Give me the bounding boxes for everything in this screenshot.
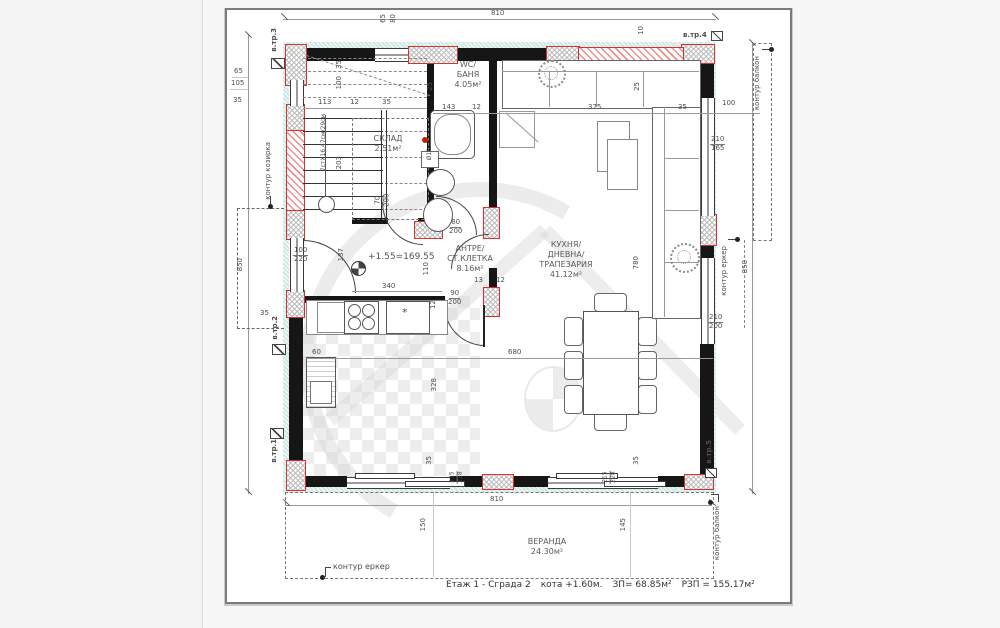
dim-label: 228	[457, 471, 464, 482]
valve-marker	[422, 137, 428, 143]
dim-line-340	[352, 291, 442, 292]
sofa-back-line	[664, 107, 665, 317]
dim-label: 25	[427, 82, 434, 91]
title-block: Етаж 1 - Сграда 2 кота +1.60м. ЗП= 68.85…	[446, 580, 755, 590]
dim-label: 113	[318, 99, 331, 106]
dim-label: 200	[449, 228, 462, 236]
burner	[362, 304, 375, 317]
marker-vtr5: в.тр.5	[706, 440, 713, 464]
column-bottom-mid	[482, 474, 514, 490]
sofa-top	[502, 60, 701, 109]
dim-label: 25	[634, 82, 641, 91]
dim-label: 200	[709, 323, 722, 331]
chair	[564, 351, 583, 380]
stair-tread	[303, 84, 427, 86]
dim-label: 165	[711, 145, 724, 153]
leader-line	[718, 494, 719, 502]
wall-right-b	[700, 244, 714, 258]
bathtub-basin	[434, 114, 471, 155]
dim-label: 228	[610, 471, 617, 482]
dim-fraction: 210 165	[710, 136, 725, 152]
leader-dot	[708, 500, 713, 505]
dim-fraction: 70 200	[375, 194, 391, 207]
room-name: КУХНЯ/	[520, 240, 612, 250]
sofa-right	[652, 107, 701, 319]
chair	[638, 317, 657, 346]
sofa-divider	[665, 210, 699, 211]
contour-balkon-bottom-label: контур балкон	[714, 506, 721, 560]
dim-label: 35	[426, 456, 433, 465]
dim-label: 680	[508, 349, 521, 356]
marker-vtr5-icon	[705, 468, 717, 478]
room-label-sklad: СКЛАД 2.51м²	[360, 134, 416, 154]
marker-vtr1: в.тр.1	[271, 439, 278, 463]
dim-label: 105	[231, 80, 244, 87]
window-left-a	[290, 80, 304, 106]
room-name: ТРАПЕЗАРИЯ	[520, 260, 612, 270]
corner-cabinet	[499, 111, 535, 148]
pipe-label: Ø18	[427, 148, 433, 160]
floorplan-viewport: * +1.55=169.55	[0, 0, 1000, 628]
slider-leaf	[355, 473, 415, 479]
wall-right-a	[700, 62, 714, 98]
dim-label: 200	[448, 299, 461, 307]
chair	[564, 385, 583, 414]
contour-erker-bottom-label: контур еркер	[333, 563, 390, 571]
room-name: АНТРЕ/	[436, 244, 504, 254]
marker-vtr4-icon	[711, 31, 723, 41]
leader-dot	[735, 237, 740, 242]
dim-label: 80	[390, 14, 397, 23]
room-area: 8.16м²	[436, 264, 504, 274]
dim-label: 100	[336, 76, 343, 89]
room-area: 24.30м²	[505, 547, 589, 557]
dining-table	[583, 311, 639, 415]
dim-label: 65	[234, 68, 243, 75]
room-label-kitchen: КУХНЯ/ ДНЕВНА/ ТРАПЕЗАРИЯ 41.12м²	[520, 240, 612, 280]
dim-label: 150	[420, 518, 427, 531]
dim-line-680	[306, 358, 713, 359]
level-mark: +1.55=169.55	[368, 252, 435, 262]
stair-walkline-start	[318, 196, 335, 213]
room-label-wc: WC/ БАНЯ 4.05м²	[436, 60, 500, 90]
dim-label: 35	[233, 97, 242, 104]
dim-fraction: 80 200	[449, 219, 462, 235]
dim-label: 203	[336, 156, 343, 169]
room-area: 4.05м²	[436, 80, 500, 90]
room-name: ДНЕВНА/	[520, 250, 612, 260]
washbasin	[426, 169, 455, 196]
marker-vtr2: в.тр.2	[272, 316, 279, 340]
leader-dot	[268, 204, 273, 209]
kitchen-unit-star	[386, 301, 430, 334]
dim-label: 12	[496, 277, 505, 284]
dim-label: 35	[633, 456, 640, 465]
dim-fraction: 100 220	[293, 247, 308, 263]
dim-label: 850	[237, 258, 244, 271]
chair	[594, 293, 627, 312]
dim-label: 10	[638, 26, 645, 35]
column-left-c	[286, 290, 305, 318]
dim-label: 810	[490, 496, 503, 503]
dim-label: 780	[633, 256, 640, 269]
burner	[348, 304, 361, 317]
wall-hatch-left	[286, 130, 305, 212]
leader-dot	[320, 575, 325, 580]
dim-fraction: 90 200	[448, 290, 461, 306]
door-leaf-kitchen	[483, 305, 485, 347]
dim-label: 110	[423, 262, 430, 275]
sofa-divider	[665, 158, 699, 159]
marker-vtr2-icon	[272, 344, 286, 355]
dim-rule	[232, 77, 248, 78]
caption-rzp: РЗП = 155.17м²	[682, 580, 755, 590]
caption-level: кота +1.60м.	[541, 580, 603, 590]
leader-line	[762, 49, 769, 50]
dim-label: 143	[442, 104, 455, 111]
dim-line-interior-top	[433, 113, 760, 114]
room-label-antre: АНТРЕ/ СТ.КЛЕТКА 8.16м²	[436, 244, 504, 274]
dim-line-top	[283, 19, 716, 20]
dim-label: 35	[260, 310, 269, 317]
dim-label: 850	[742, 260, 749, 273]
chair	[564, 317, 583, 346]
dim-fraction: 215 228	[603, 470, 617, 483]
column-left-b	[286, 210, 305, 240]
chair	[638, 385, 657, 414]
plant-icon-inner	[544, 66, 558, 80]
dim-label: 145	[620, 518, 627, 531]
dim-label: 375	[588, 104, 601, 111]
dim-label: 65	[380, 14, 387, 23]
dim-label: 328	[431, 378, 438, 391]
dim-fraction: 210 200	[708, 314, 723, 330]
dim-label: 12	[350, 99, 359, 106]
marker-vtr1-icon	[270, 428, 284, 439]
plant-icon-inner	[677, 250, 691, 264]
sofa-back-line	[502, 71, 699, 72]
level-symbol-icon	[351, 261, 366, 276]
kitchen-cabinet	[317, 302, 345, 333]
sofa-divider	[596, 72, 597, 107]
dim-label: 340	[382, 283, 395, 290]
dim-label: 13	[474, 277, 483, 284]
burner	[348, 317, 361, 330]
stair-tread	[303, 71, 427, 73]
dim-label: 220	[294, 256, 307, 264]
marker-vtr3: в.тр.3	[271, 28, 278, 52]
room-area: 2.51м²	[360, 144, 416, 154]
room-label-veranda: ВЕРАНДА 24.30м²	[505, 537, 589, 557]
chair	[638, 351, 657, 380]
room-name: БАНЯ	[436, 70, 500, 80]
caption-floor: Етаж 1 - Сграда 2	[446, 580, 531, 590]
contour-erker-right-label: контур еркер	[721, 246, 728, 296]
star-mark: *	[402, 306, 408, 319]
erker-contour-line	[744, 240, 746, 328]
dim-rule	[230, 89, 248, 90]
dim-label: 137	[338, 248, 345, 261]
dim-label: 35	[382, 99, 391, 106]
contour-kozirka-label: контур козирка	[265, 142, 272, 200]
burner	[362, 317, 375, 330]
marker-vtr4: в.тр.4	[683, 32, 707, 39]
dim-label: 12	[472, 104, 481, 111]
window-right-b	[701, 258, 715, 344]
room-name: СТ.КЛЕТКА	[436, 254, 504, 264]
wall-left-lower	[289, 316, 303, 462]
marker-vtr3-icon	[271, 58, 285, 69]
coffee-table-2	[607, 139, 638, 190]
panel-divider	[202, 0, 203, 628]
room-name: ВЕРАНДА	[505, 537, 589, 547]
window-right-a	[701, 98, 715, 216]
caption-zp: ЗП= 68.85м²	[612, 580, 671, 590]
room-area: 41.12м²	[520, 270, 612, 280]
wall-bottom-a	[303, 476, 347, 487]
dim-label: 35	[678, 104, 687, 111]
dim-label: 60	[312, 349, 321, 356]
dim-label: 35	[336, 60, 343, 69]
dim-label: 200	[383, 194, 391, 207]
room-name: WC/	[436, 60, 500, 70]
room-name: СКЛАД	[360, 134, 416, 144]
dim-label: 100	[722, 100, 735, 107]
column-jamb-c	[483, 287, 500, 317]
column-bottom-left	[286, 460, 306, 491]
stairs-note: 7стX16.47см/29см	[321, 114, 327, 171]
dim-label: 810	[491, 10, 504, 17]
dim-fraction: 215 228	[450, 470, 464, 483]
dim-line-stair	[303, 108, 427, 109]
leader-line	[325, 567, 326, 577]
fridge-inner	[310, 381, 332, 404]
contour-balkon-top-label: контур балкон	[754, 56, 761, 110]
sofa-divider	[643, 72, 644, 107]
dim-label: 12	[430, 300, 437, 309]
leader-dot	[769, 47, 774, 52]
